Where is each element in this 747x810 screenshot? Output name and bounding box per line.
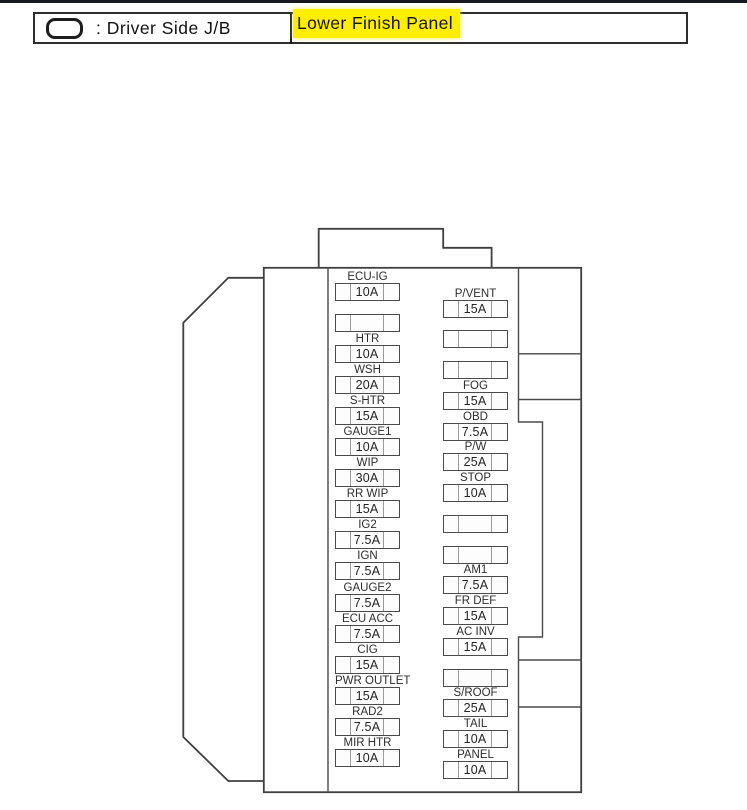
- fuse-rect: 7.5A: [335, 718, 400, 736]
- fuse-terminal-right: [491, 331, 507, 347]
- fuse-row: WSH20A: [335, 364, 400, 395]
- fuse-terminal-right: [383, 626, 399, 642]
- fuse-terminal-right: [383, 346, 399, 362]
- fuse-rect: 15A: [443, 392, 508, 410]
- fuse-amp-rating: 7.5A: [459, 577, 491, 593]
- fuse-amp-rating: 10A: [351, 284, 383, 300]
- fuse-amp-rating: 7.5A: [351, 719, 383, 735]
- fuse-terminal-right: [383, 284, 399, 300]
- fuse-label: P/W: [443, 441, 508, 453]
- fuse-terminal-right: [383, 657, 399, 673]
- fuse-terminal-right: [383, 408, 399, 424]
- fuse-amp-rating: [351, 315, 383, 331]
- fuse-amp-rating: 20A: [351, 377, 383, 393]
- fuse-row: WIP30A: [335, 457, 400, 488]
- fusebox-body: [264, 268, 581, 792]
- fuse-row: S/ROOF25A: [443, 687, 508, 718]
- fuse-amp-rating: 7.5A: [351, 595, 383, 611]
- fuse-row-empty: [443, 657, 508, 688]
- fuse-rect: 15A: [443, 300, 508, 318]
- fuse-row: AC INV15A: [443, 626, 508, 657]
- fuse-terminal-left: [444, 639, 459, 655]
- fuse-amp-rating: [459, 516, 491, 532]
- fuse-rect: [443, 546, 508, 564]
- fuse-terminal-left: [444, 516, 459, 532]
- fuse-rect: [443, 330, 508, 348]
- fuse-amp-rating: 10A: [351, 750, 383, 766]
- fuse-rect: [443, 515, 508, 533]
- fuse-amp-rating: 7.5A: [351, 532, 383, 548]
- fuse-label: S/ROOF: [443, 687, 508, 699]
- fuse-terminal-right: [383, 563, 399, 579]
- fuse-terminal-right: [491, 485, 507, 501]
- fuse-rect: 15A: [335, 656, 400, 674]
- fuse-label: RAD2: [335, 706, 400, 718]
- fuse-terminal-left: [444, 301, 459, 317]
- fuse-label: FOG: [443, 380, 508, 392]
- fuse-label: PANEL: [443, 749, 508, 761]
- fuse-amp-rating: 7.5A: [351, 626, 383, 642]
- fuse-terminal-left: [444, 362, 459, 378]
- left-side-protrusion: [183, 278, 263, 781]
- fuse-row: ECU-IG10A: [335, 271, 400, 302]
- fuse-terminal-right: [383, 750, 399, 766]
- fuse-terminal-left: [336, 595, 351, 611]
- fuse-row: P/W25A: [443, 441, 508, 472]
- fuse-label: ECU-IG: [335, 271, 400, 283]
- fuse-row: HTR10A: [335, 333, 400, 364]
- fuse-terminal-right: [491, 577, 507, 593]
- fuse-rect: 7.5A: [335, 625, 400, 643]
- fuse-label: ECU ACC: [335, 613, 400, 625]
- fuse-row: MIR HTR10A: [335, 737, 400, 768]
- fuse-rect: [443, 361, 508, 379]
- fuse-terminal-right: [491, 700, 507, 716]
- fuse-terminal-right: [491, 301, 507, 317]
- fuse-row: RAD27.5A: [335, 706, 400, 737]
- fuse-label: CIG: [335, 644, 400, 656]
- fuse-terminal-right: [491, 393, 507, 409]
- fuse-rect: 10A: [443, 761, 508, 779]
- fuse-terminal-right: [383, 439, 399, 455]
- fuse-amp-rating: 15A: [351, 501, 383, 517]
- fuse-row-empty: [443, 534, 508, 565]
- fuse-row: PANEL10A: [443, 749, 508, 780]
- fuse-terminal-left: [444, 485, 459, 501]
- fuse-terminal-right: [383, 470, 399, 486]
- fuse-terminal-left: [336, 315, 351, 331]
- fuse-terminal-right: [491, 762, 507, 778]
- fuse-rect: 15A: [443, 607, 508, 625]
- fuse-amp-rating: [459, 670, 491, 686]
- fuse-label: GAUGE2: [335, 582, 400, 594]
- fuse-row: P/VENT15A: [443, 288, 508, 319]
- fuse-row: S-HTR15A: [335, 395, 400, 426]
- fuse-label: P/VENT: [443, 288, 508, 300]
- fuse-label: HTR: [335, 333, 400, 345]
- fuse-label: [443, 318, 508, 330]
- fuse-row: GAUGE27.5A: [335, 582, 400, 613]
- fuse-amp-rating: 10A: [459, 485, 491, 501]
- fuse-rect: 7.5A: [335, 531, 400, 549]
- fuse-terminal-left: [444, 670, 459, 686]
- fuse-row: OBD7.5A: [443, 411, 508, 442]
- fuse-row: STOP10A: [443, 472, 508, 503]
- fuse-rect: 15A: [443, 638, 508, 656]
- fuse-terminal-right: [383, 595, 399, 611]
- fuse-terminal-left: [336, 501, 351, 517]
- fuse-amp-rating: 15A: [351, 408, 383, 424]
- fuse-label: TAIL: [443, 718, 508, 730]
- fuse-terminal-right: [491, 731, 507, 747]
- fuse-label: [443, 534, 508, 546]
- fuse-rect: 10A: [443, 484, 508, 502]
- fuse-amp-rating: 15A: [459, 301, 491, 317]
- fuse-label: IG2: [335, 519, 400, 531]
- fuse-terminal-left: [336, 532, 351, 548]
- fuse-label: STOP: [443, 472, 508, 484]
- fuse-amp-rating: 15A: [351, 688, 383, 704]
- fuse-terminal-right: [491, 362, 507, 378]
- fuse-label: PWR OUTLET: [335, 675, 400, 687]
- fuse-terminal-left: [336, 657, 351, 673]
- fuse-terminal-right: [491, 516, 507, 532]
- fuse-terminal-left: [336, 688, 351, 704]
- fuse-label: [443, 349, 508, 361]
- fuse-amp-rating: 10A: [459, 762, 491, 778]
- fuse-amp-rating: 15A: [351, 657, 383, 673]
- fuse-amp-rating: 25A: [459, 454, 491, 470]
- fuse-amp-rating: [459, 547, 491, 563]
- fuse-terminal-right: [491, 547, 507, 563]
- fuse-label: AC INV: [443, 626, 508, 638]
- fuse-terminal-left: [336, 408, 351, 424]
- fuse-terminal-right: [491, 608, 507, 624]
- fuse-terminal-right: [491, 454, 507, 470]
- fuse-terminal-left: [336, 346, 351, 362]
- fuse-amp-rating: 7.5A: [459, 424, 491, 440]
- fuse-terminal-right: [383, 688, 399, 704]
- fuse-terminal-left: [336, 750, 351, 766]
- fuse-row: CIG15A: [335, 644, 400, 675]
- fuse-terminal-left: [336, 563, 351, 579]
- fuse-row-empty: [443, 318, 508, 349]
- fuse-terminal-left: [444, 577, 459, 593]
- fuse-rect: 7.5A: [443, 423, 508, 441]
- fuse-rect: [335, 314, 400, 332]
- fuse-terminal-left: [336, 470, 351, 486]
- fuse-row-empty: [443, 503, 508, 534]
- top-tab: [319, 229, 492, 267]
- fuse-row: GAUGE110A: [335, 426, 400, 457]
- fuse-amp-rating: 10A: [459, 731, 491, 747]
- fuse-terminal-left: [444, 547, 459, 563]
- fuse-label: [443, 657, 508, 669]
- fuse-label: [335, 302, 400, 314]
- fuse-terminal-left: [444, 331, 459, 347]
- fuse-rect: 7.5A: [443, 576, 508, 594]
- fuse-rect: 25A: [443, 699, 508, 717]
- fuse-label: S-HTR: [335, 395, 400, 407]
- fuse-rect: 10A: [335, 438, 400, 456]
- fuse-terminal-right: [383, 377, 399, 393]
- fuse-terminal-left: [444, 731, 459, 747]
- fuse-rect: 7.5A: [335, 594, 400, 612]
- fuse-label: RR WIP: [335, 488, 400, 500]
- fuse-terminal-right: [491, 670, 507, 686]
- fuse-rect: 15A: [335, 407, 400, 425]
- fuse-rect: 25A: [443, 453, 508, 471]
- fuse-terminal-left: [336, 719, 351, 735]
- fuse-row: IGN7.5A: [335, 550, 400, 581]
- fuse-label: GAUGE1: [335, 426, 400, 438]
- fuse-label: AM1: [443, 564, 508, 576]
- fuse-row: FOG15A: [443, 380, 508, 411]
- fuse-terminal-left: [336, 439, 351, 455]
- fuse-rect: 30A: [335, 469, 400, 487]
- fuse-row: AM17.5A: [443, 564, 508, 595]
- page: : Driver Side J/B Lower Finish Panel ECU…: [0, 0, 747, 810]
- fuse-rect: 15A: [335, 500, 400, 518]
- fuse-rect: [443, 669, 508, 687]
- fuse-label: WIP: [335, 457, 400, 469]
- fuse-label: [443, 503, 508, 515]
- fuse-amp-rating: 30A: [351, 470, 383, 486]
- fuse-row-empty: [443, 349, 508, 380]
- fuse-terminal-right: [383, 532, 399, 548]
- fuse-label: MIR HTR: [335, 737, 400, 749]
- fuse-terminal-right: [491, 424, 507, 440]
- fuse-rect: 10A: [335, 749, 400, 767]
- fuse-amp-rating: 25A: [459, 700, 491, 716]
- fuse-amp-rating: 15A: [459, 639, 491, 655]
- fuse-terminal-left: [444, 424, 459, 440]
- fuse-rect: 7.5A: [335, 562, 400, 580]
- fuse-amp-rating: [459, 331, 491, 347]
- fuse-label: IGN: [335, 550, 400, 562]
- fuse-terminal-right: [383, 315, 399, 331]
- fuse-rect: 10A: [443, 730, 508, 748]
- fuse-terminal-right: [491, 639, 507, 655]
- fuse-amp-rating: 15A: [459, 608, 491, 624]
- fuse-rect: 10A: [335, 345, 400, 363]
- fuse-terminal-left: [444, 454, 459, 470]
- fuse-terminal-left: [444, 608, 459, 624]
- fuse-row: IG27.5A: [335, 519, 400, 550]
- fuse-terminal-left: [336, 284, 351, 300]
- fuse-terminal-right: [383, 719, 399, 735]
- fuse-terminal-left: [444, 762, 459, 778]
- fuse-terminal-left: [444, 393, 459, 409]
- fuse-row: PWR OUTLET15A: [335, 675, 400, 706]
- fuse-amp-rating: 7.5A: [351, 563, 383, 579]
- fuse-terminal-right: [383, 501, 399, 517]
- fuse-amp-rating: [459, 362, 491, 378]
- fuse-rect: 15A: [335, 687, 400, 705]
- fuse-terminal-left: [336, 626, 351, 642]
- fuse-terminal-left: [336, 377, 351, 393]
- fuse-row: RR WIP15A: [335, 488, 400, 519]
- fuse-row-empty: [335, 302, 400, 333]
- fuse-label: OBD: [443, 411, 508, 423]
- fuse-row: ECU ACC7.5A: [335, 613, 400, 644]
- fuse-row: FR DEF15A: [443, 595, 508, 626]
- fuse-label: FR DEF: [443, 595, 508, 607]
- fuse-amp-rating: 10A: [351, 346, 383, 362]
- right-inner-divider: [519, 268, 543, 793]
- fuse-rect: 20A: [335, 376, 400, 394]
- fuse-amp-rating: 15A: [459, 393, 491, 409]
- fuse-amp-rating: 10A: [351, 439, 383, 455]
- fuse-rect: 10A: [335, 283, 400, 301]
- fuse-label: WSH: [335, 364, 400, 376]
- fuse-terminal-left: [444, 700, 459, 716]
- fuse-row: TAIL10A: [443, 718, 508, 749]
